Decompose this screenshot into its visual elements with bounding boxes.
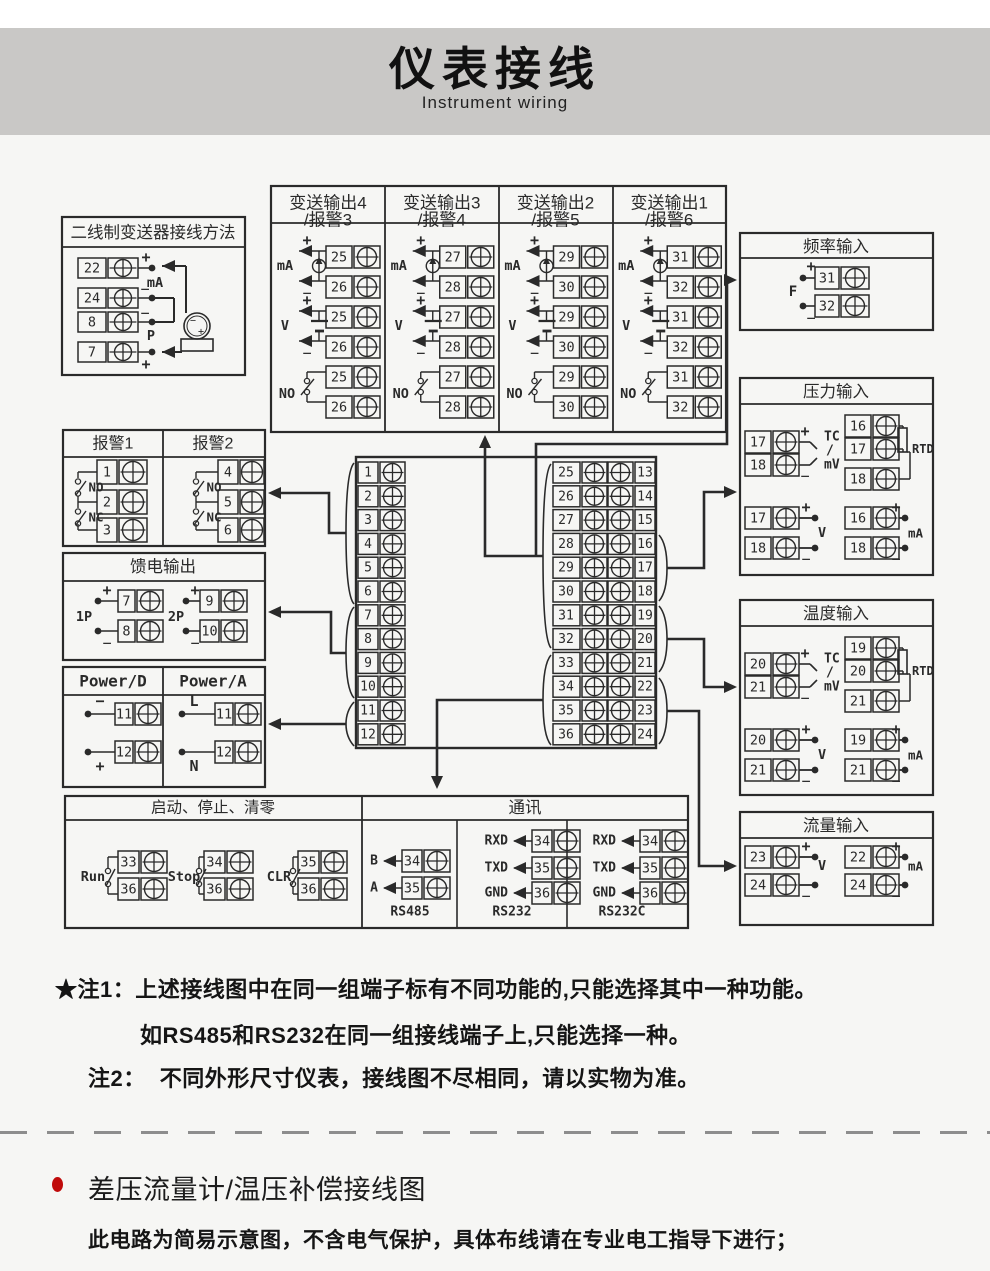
svg-text:25: 25 (331, 310, 347, 326)
terminal-23: 23 (745, 846, 799, 868)
svg-text:NO: NO (279, 386, 295, 402)
svg-text:26: 26 (331, 340, 347, 356)
svg-text:/报警5: /报警5 (531, 211, 579, 230)
note-2-prefix: 注2： (88, 1066, 146, 1091)
svg-text:+: + (102, 581, 111, 599)
svg-text:−: − (190, 634, 199, 652)
svg-text:35: 35 (642, 861, 658, 877)
svg-text:24: 24 (84, 291, 100, 307)
terminal-27: 27 (440, 366, 494, 388)
terminal-5: 5 (358, 557, 405, 578)
terminal-27: 27 (440, 306, 494, 328)
terminal-36: 36 (204, 878, 253, 900)
svg-text:25: 25 (331, 250, 347, 266)
terminal-35: 35 (298, 851, 347, 873)
svg-text:−: − (800, 467, 809, 485)
terminal-21: 21 (845, 690, 899, 712)
svg-text:20: 20 (750, 657, 766, 673)
terminal-26: 26 (326, 276, 380, 298)
svg-text:mA: mA (277, 258, 293, 274)
svg-text:31: 31 (558, 608, 574, 623)
svg-text:20: 20 (750, 733, 766, 749)
svg-text:−: − (806, 309, 815, 327)
svg-text:14: 14 (637, 489, 653, 504)
svg-text:mA: mA (908, 859, 924, 874)
terminal-11: 11 (115, 703, 161, 725)
terminal-6: 6 (358, 581, 405, 602)
svg-text:V: V (818, 747, 826, 763)
svg-text:/报警3: /报警3 (304, 211, 352, 230)
terminal-27-15: 2715 (553, 510, 655, 531)
svg-text:NO: NO (620, 386, 636, 402)
svg-text:5: 5 (224, 495, 232, 511)
svg-text:26: 26 (331, 400, 347, 416)
svg-text:−: − (140, 304, 149, 322)
terminal-30: 30 (554, 396, 608, 418)
svg-text:34: 34 (534, 834, 550, 850)
terminal-32: 32 (815, 295, 869, 317)
svg-text:RTD: RTD (912, 664, 934, 678)
svg-text:16: 16 (637, 537, 653, 552)
svg-text:12: 12 (116, 745, 132, 761)
svg-text:27: 27 (445, 310, 461, 326)
comm-section-RS232C: 34RXD35TXD36GNDRS232C (593, 830, 688, 920)
terminal-8: 8 (358, 629, 405, 650)
terminal-17: 17 (845, 438, 899, 460)
svg-text:26: 26 (331, 280, 347, 296)
svg-text:30: 30 (558, 400, 574, 416)
svg-text:+: + (801, 837, 810, 855)
two-wire-transmitter-box: 二线制变送器接线方法222487+mA−−P+−+ (62, 217, 245, 375)
terminal-30: 30 (554, 336, 608, 358)
svg-text:11: 11 (216, 707, 232, 723)
svg-text:通讯: 通讯 (509, 798, 542, 817)
svg-text:18: 18 (850, 472, 866, 488)
feed-output-box: 馈电输出78+−1P910+−2P (63, 553, 265, 660)
terminal-20: 20 (845, 660, 899, 682)
svg-text:N: N (189, 757, 198, 775)
svg-text:+: + (800, 422, 809, 440)
note-1b: 如RS485和RS232在同一组接线端子上,只能选择一种。 (140, 1018, 691, 1050)
svg-text:NO: NO (206, 480, 221, 495)
power-box: Power/DPower/A1112−+1112LN (63, 667, 265, 787)
svg-text:29: 29 (558, 561, 574, 576)
svg-text:+: + (141, 355, 150, 373)
central-terminal-block: 1251322614327154281652917630187311983220… (346, 457, 667, 748)
svg-text:Run: Run (81, 869, 105, 885)
terminal-11: 11 (358, 700, 405, 721)
terminal-35: 35 (402, 877, 450, 899)
svg-text:10: 10 (360, 680, 376, 695)
svg-text:P: P (147, 328, 155, 344)
svg-text:27: 27 (445, 250, 461, 266)
note-2: 注2：不同外形尺寸仪表，接线图不尽相同，请以实物为准。 (88, 1061, 700, 1093)
svg-text:33: 33 (120, 855, 136, 871)
svg-text:+: + (416, 231, 425, 249)
svg-text:19: 19 (637, 608, 653, 623)
comm-section-RS232: 34RXD35TXD36GNDRS232 (485, 830, 580, 920)
svg-text:36: 36 (206, 882, 222, 898)
svg-text:+: + (530, 231, 539, 249)
svg-text:9: 9 (205, 594, 213, 610)
terminal-20: 20 (745, 653, 799, 675)
note-1-text: 上述接线图中在同一组端子标有不同功能的,只能选择其中一种功能。 (135, 977, 817, 1002)
svg-text:15: 15 (637, 513, 653, 528)
terminal-34: 34 (204, 851, 253, 873)
svg-text:31: 31 (672, 310, 688, 326)
terminal-29: 29 (554, 306, 608, 328)
terminal-20: 20 (745, 729, 799, 751)
svg-text:33: 33 (558, 656, 574, 671)
svg-text:二线制变送器接线方法: 二线制变送器接线方法 (71, 223, 236, 242)
svg-text:+: + (644, 291, 653, 309)
svg-text:RS232: RS232 (492, 905, 531, 920)
svg-text:36: 36 (300, 882, 316, 898)
svg-text:9: 9 (364, 656, 372, 671)
svg-text:mV: mV (824, 458, 840, 473)
terminal-6: 6 (218, 518, 264, 542)
svg-text:+: + (891, 498, 900, 516)
svg-text:/: / (826, 444, 834, 459)
svg-text:32: 32 (558, 632, 574, 647)
svg-text:−: − (891, 772, 900, 790)
note-1-prefix: ★注1： (55, 977, 135, 1002)
svg-text:+: + (530, 291, 539, 309)
terminal-35-23: 3523 (553, 700, 655, 721)
terminal-31: 31 (667, 366, 721, 388)
xmit-column-3: 变送输出3/报警4+−mA2728+−V2728NO2728 (391, 194, 494, 419)
svg-text:−: − (302, 344, 311, 362)
terminal-34: 34 (402, 850, 450, 872)
svg-text:24: 24 (637, 727, 653, 742)
svg-text:30: 30 (558, 585, 574, 600)
terminal-35: 35 (532, 857, 580, 879)
temperature-input-box: 温度输入2021+−TC/mV192021RTD2021+−V1921+−mA (740, 600, 934, 795)
svg-text:28: 28 (445, 340, 461, 356)
terminal-5: 5 (218, 490, 264, 514)
terminal-21: 21 (745, 676, 799, 698)
terminal-34: 34 (532, 830, 580, 852)
terminal-36: 36 (298, 878, 347, 900)
terminal-28-16: 2816 (553, 533, 655, 554)
svg-text:−: − (140, 280, 149, 298)
svg-text:RXD: RXD (593, 834, 617, 849)
svg-text:+: + (198, 327, 204, 338)
pressure-input-box: 压力输入1718+−TC/mV161718RTD1718+−V1618+−mA (740, 378, 934, 575)
terminal-34: 34 (640, 830, 688, 852)
svg-text:31: 31 (672, 250, 688, 266)
svg-text:启动、停止、清零: 启动、停止、清零 (151, 799, 276, 817)
svg-text:30: 30 (558, 280, 574, 296)
svg-text:27: 27 (558, 513, 574, 528)
terminal-7: 7 (358, 605, 405, 626)
svg-text:mA: mA (908, 748, 924, 763)
svg-text:频率输入: 频率输入 (803, 237, 869, 256)
svg-text:22: 22 (850, 850, 866, 866)
terminal-8: 8 (118, 620, 163, 642)
svg-text:28: 28 (445, 280, 461, 296)
svg-text:1: 1 (364, 466, 372, 481)
terminal-31-19: 3119 (553, 605, 655, 626)
svg-text:V: V (622, 318, 630, 334)
svg-text:+: + (416, 291, 425, 309)
terminal-9: 9 (358, 652, 405, 673)
svg-text:7: 7 (122, 594, 130, 610)
svg-text:25: 25 (558, 466, 574, 481)
svg-text:1: 1 (103, 465, 111, 481)
svg-text:4: 4 (364, 537, 372, 552)
terminal-21: 21 (745, 759, 799, 781)
terminal-18: 18 (745, 537, 799, 559)
svg-text:20: 20 (850, 664, 866, 680)
terminal-36-24: 3624 (553, 724, 655, 745)
svg-text:32: 32 (672, 400, 688, 416)
red-bullet-icon (52, 1177, 63, 1192)
svg-text:6: 6 (364, 585, 372, 600)
terminal-17: 17 (745, 507, 799, 529)
terminal-10: 10 (200, 620, 247, 642)
svg-text:23: 23 (750, 850, 766, 866)
svg-text:V: V (818, 858, 826, 874)
svg-text:NC: NC (88, 510, 103, 525)
note-1b-text: 如RS485和RS232在同一组接线端子上,只能选择一种。 (140, 1023, 691, 1048)
svg-text:16: 16 (850, 419, 866, 435)
transmit-output-group: 变送输出4/报警3+−mA2526+−V2526NO2526变送输出3/报警4+… (271, 186, 726, 432)
terminal-16: 16 (845, 415, 899, 437)
svg-text:TXD: TXD (593, 861, 617, 876)
svg-text:V: V (395, 318, 403, 334)
svg-text:25: 25 (331, 370, 347, 386)
svg-text:23: 23 (637, 704, 653, 719)
terminal-31: 31 (667, 306, 721, 328)
svg-text:+: + (302, 231, 311, 249)
terminal-32: 32 (667, 396, 721, 418)
svg-text:30: 30 (558, 340, 574, 356)
alarm-box: 报警1报警2123NONC456NONC (63, 430, 265, 546)
terminal-35: 35 (640, 857, 688, 879)
svg-text:29: 29 (558, 370, 574, 386)
svg-text:−: − (644, 344, 653, 362)
svg-text:+: + (302, 291, 311, 309)
svg-text:+: + (801, 498, 810, 516)
svg-text:V: V (818, 525, 826, 541)
svg-text:5: 5 (364, 561, 372, 576)
svg-text:21: 21 (750, 763, 766, 779)
svg-text:32: 32 (819, 299, 835, 315)
svg-text:11: 11 (360, 704, 376, 719)
svg-text:+: + (801, 720, 810, 738)
svg-text:−: − (891, 550, 900, 568)
svg-text:温度输入: 温度输入 (803, 604, 869, 623)
terminal-10: 10 (358, 676, 405, 697)
svg-text:28: 28 (558, 537, 574, 552)
terminal-2: 2 (358, 486, 405, 507)
svg-text:L: L (189, 692, 198, 710)
svg-text:21: 21 (850, 763, 866, 779)
note-2-text: 不同外形尺寸仪表，接线图不尽相同，请以实物为准。 (160, 1066, 700, 1091)
svg-text:12: 12 (216, 745, 232, 761)
terminal-25: 25 (326, 306, 380, 328)
svg-text:34: 34 (558, 680, 574, 695)
terminal-25: 25 (326, 366, 380, 388)
svg-text:−: − (95, 692, 104, 710)
svg-text:32: 32 (672, 340, 688, 356)
svg-text:F: F (789, 284, 797, 300)
svg-text:18: 18 (850, 541, 866, 557)
svg-text:−: − (801, 887, 810, 905)
svg-text:20: 20 (637, 632, 653, 647)
svg-text:NO: NO (393, 386, 409, 402)
svg-text:35: 35 (558, 704, 574, 719)
terminal-34-22: 3422 (553, 676, 655, 697)
terminal-33-21: 3321 (553, 652, 655, 673)
svg-text:+: + (891, 720, 900, 738)
terminal-24: 24 (78, 288, 138, 308)
svg-text:24: 24 (750, 878, 766, 894)
terminal-7: 7 (118, 590, 163, 612)
flow-input-box: 流量输入2324+−V2224+−mA (740, 812, 933, 925)
svg-text:mV: mV (824, 680, 840, 695)
terminal-36: 36 (532, 882, 580, 904)
svg-text:11: 11 (116, 707, 132, 723)
svg-text:34: 34 (206, 855, 222, 871)
svg-text:19: 19 (850, 641, 866, 657)
svg-text:21: 21 (750, 680, 766, 696)
svg-text:/报警6: /报警6 (645, 211, 693, 230)
svg-text:mA: mA (618, 258, 634, 274)
svg-text:18: 18 (750, 458, 766, 474)
svg-text:7: 7 (88, 345, 96, 361)
svg-text:36: 36 (534, 886, 550, 902)
svg-text:13: 13 (637, 466, 653, 481)
terminal-18: 18 (745, 454, 799, 476)
terminal-28: 28 (440, 396, 494, 418)
footer-heading: 差压流量计/温压补偿接线图 (88, 1168, 426, 1207)
terminal-17: 17 (745, 431, 799, 453)
svg-text:26: 26 (558, 489, 574, 504)
svg-text:+: + (891, 837, 900, 855)
svg-text:22: 22 (637, 680, 653, 695)
svg-text:34: 34 (404, 854, 420, 870)
svg-text:−: − (891, 887, 900, 905)
instrument-wiring-page: 仪表接线 Instrument wiring 二线制变送器接线方法222487+… (0, 0, 990, 1271)
svg-text:+: + (806, 257, 815, 275)
svg-text:17: 17 (637, 561, 653, 576)
svg-text:21: 21 (637, 656, 653, 671)
svg-text:V: V (508, 318, 516, 334)
svg-text:32: 32 (672, 280, 688, 296)
terminal-26: 26 (326, 396, 380, 418)
svg-text:TXD: TXD (485, 861, 509, 876)
svg-text:17: 17 (750, 435, 766, 451)
terminal-8: 8 (78, 312, 138, 332)
svg-text:35: 35 (300, 855, 316, 871)
svg-text:8: 8 (364, 632, 372, 647)
svg-text:B: B (370, 854, 378, 869)
svg-text:−: − (416, 344, 425, 362)
terminal-1: 1 (97, 460, 147, 484)
svg-text:+: + (95, 757, 104, 775)
svg-text:34: 34 (642, 834, 658, 850)
terminal-36: 36 (118, 878, 167, 900)
terminal-25-13: 2513 (553, 462, 655, 483)
svg-text:/: / (826, 666, 834, 681)
svg-text:流量输入: 流量输入 (803, 816, 869, 835)
svg-text:35: 35 (404, 881, 420, 897)
svg-text:12: 12 (360, 727, 376, 742)
svg-text:3: 3 (364, 513, 372, 528)
svg-text:36: 36 (558, 727, 574, 742)
svg-text:31: 31 (672, 370, 688, 386)
terminal-32: 32 (667, 276, 721, 298)
terminal-3: 3 (358, 510, 405, 531)
xmit-column-1: 变送输出1/报警6+−mA3132+−V3132NO3132 (618, 194, 721, 419)
svg-text:2P: 2P (168, 609, 184, 625)
terminal-26: 26 (326, 336, 380, 358)
svg-text:4: 4 (224, 465, 232, 481)
svg-text:28: 28 (445, 400, 461, 416)
terminal-24: 24 (745, 874, 799, 896)
xmit-column-4: 变送输出4/报警3+−mA2526+−V2526NO2526 (277, 194, 380, 419)
terminal-1: 1 (358, 462, 405, 483)
svg-text:22: 22 (84, 261, 100, 277)
svg-text:7: 7 (364, 608, 372, 623)
svg-text:19: 19 (850, 733, 866, 749)
terminal-30-18: 3018 (553, 581, 655, 602)
svg-text:报警1: 报警1 (93, 435, 134, 453)
terminal-29-17: 2917 (553, 557, 655, 578)
xmit-column-2: 变送输出2/报警5+−mA2930+−V2930NO2930 (504, 194, 607, 419)
terminal-27: 27 (440, 246, 494, 268)
svg-text:GND: GND (593, 886, 617, 901)
svg-text:3: 3 (103, 523, 111, 539)
frequency-input-box: 频率输入3132+−F (740, 233, 933, 330)
terminal-4: 4 (358, 533, 405, 554)
terminal-2: 2 (97, 490, 147, 514)
terminal-12: 12 (358, 724, 405, 745)
svg-text:2: 2 (364, 489, 372, 504)
svg-text:35: 35 (534, 861, 550, 877)
terminal-12: 12 (115, 741, 161, 763)
svg-text:GND: GND (485, 886, 509, 901)
terminal-36: 36 (640, 882, 688, 904)
svg-text:+: + (800, 644, 809, 662)
svg-text:mA: mA (908, 526, 924, 541)
svg-text:−: − (801, 550, 810, 568)
terminal-28: 28 (440, 336, 494, 358)
svg-text:2: 2 (103, 495, 111, 511)
svg-text:27: 27 (445, 370, 461, 386)
svg-text:18: 18 (637, 585, 653, 600)
svg-text:29: 29 (558, 310, 574, 326)
svg-text:RTD: RTD (912, 442, 934, 456)
svg-text:36: 36 (120, 882, 136, 898)
svg-text:/报警4: /报警4 (418, 211, 466, 230)
svg-text:Power/D: Power/D (79, 672, 146, 691)
terminal-31: 31 (815, 267, 869, 289)
svg-text:8: 8 (122, 624, 130, 640)
svg-text:压力输入: 压力输入 (803, 382, 869, 401)
svg-text:TC: TC (824, 430, 840, 445)
svg-text:TC: TC (824, 652, 840, 667)
terminal-18: 18 (845, 468, 899, 490)
terminal-11: 11 (215, 703, 261, 725)
svg-text:NC: NC (206, 510, 221, 525)
svg-text:报警2: 报警2 (193, 435, 234, 453)
svg-text:Stop: Stop (168, 869, 201, 885)
comm-section-RS485: 34B35ARS485 (370, 850, 450, 920)
note-1: ★注1：上述接线图中在同一组端子标有不同功能的,只能选择其中一种功能。 (55, 972, 817, 1004)
